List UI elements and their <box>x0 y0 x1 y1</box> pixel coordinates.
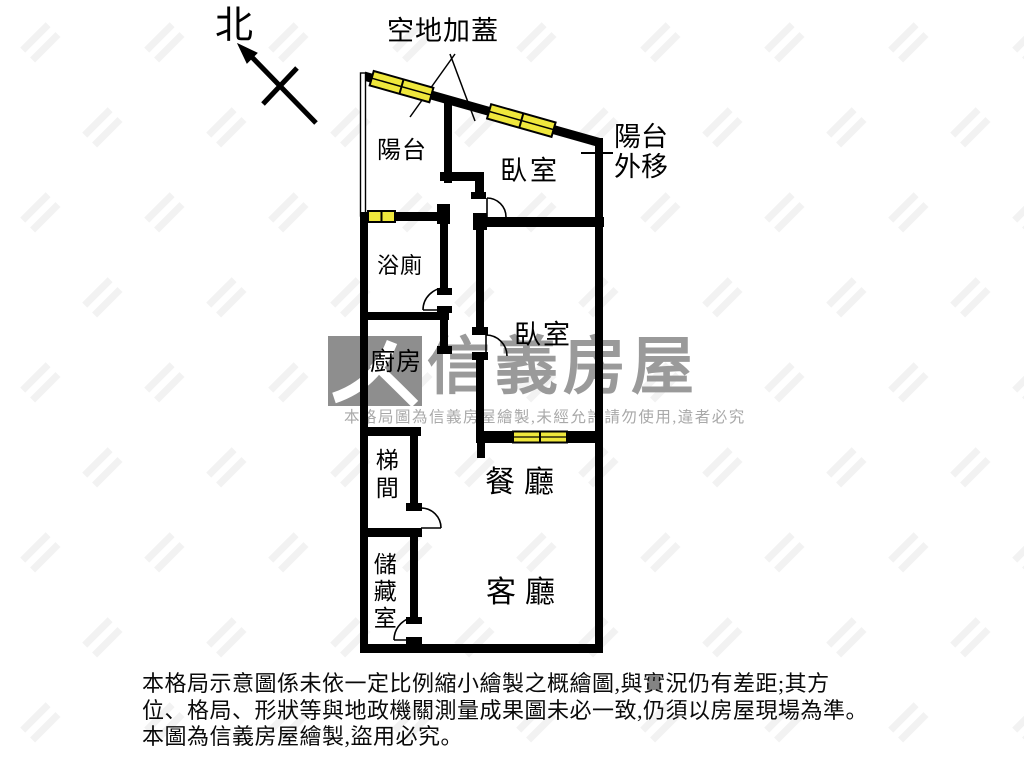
walls <box>360 73 604 653</box>
floor-plan-drawing <box>0 0 1024 768</box>
floor-plan-page: 信義房屋 本格局圖為信義房屋繪製,未經允許請勿使用,違者必究 <box>0 0 1024 768</box>
windows <box>368 71 567 443</box>
north-arrow-icon <box>238 44 316 123</box>
